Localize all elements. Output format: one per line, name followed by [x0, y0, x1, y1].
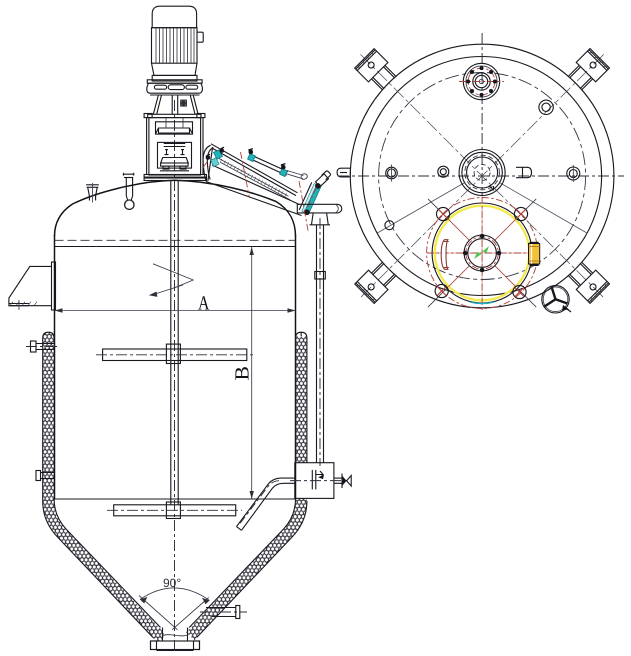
svg-text:90°: 90° — [163, 576, 181, 590]
svg-text:B: B — [232, 366, 254, 381]
svg-text:A: A — [198, 293, 210, 315]
